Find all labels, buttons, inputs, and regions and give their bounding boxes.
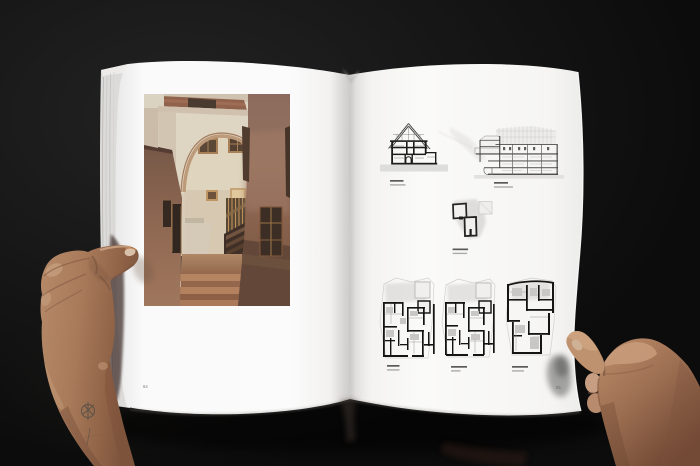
- svg-text:65: 65: [556, 385, 561, 390]
- svg-text:64: 64: [143, 384, 148, 389]
